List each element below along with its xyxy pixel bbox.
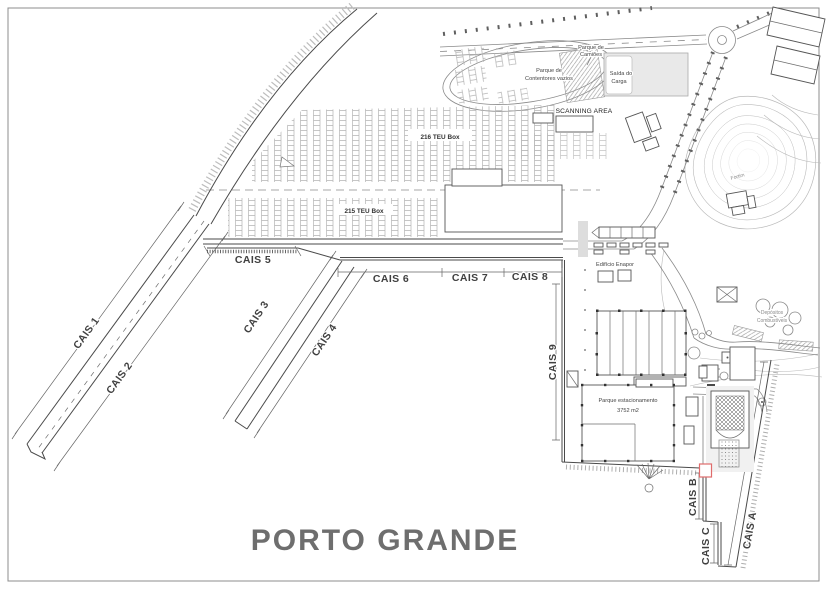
label-216-teu: 216 TEU Box <box>420 134 460 141</box>
label-cais-5: CAIS 5 <box>235 254 271 266</box>
label-cais-8: CAIS 8 <box>512 271 548 283</box>
label-cais-c: CAIS C <box>700 527 712 565</box>
enapor-building <box>599 227 655 238</box>
label-cais-7: CAIS 7 <box>452 272 488 284</box>
teu-215-field <box>228 198 443 237</box>
label-empty-containers-1: Parque de <box>536 68 562 74</box>
label-fuel-1: Depósitos <box>761 310 784 316</box>
label-parking-1: Parque estacionamento <box>598 398 657 404</box>
label-empty-containers-2: Contentores vazios <box>525 76 573 82</box>
label-cais-6: CAIS 6 <box>373 273 409 285</box>
fuel-pier <box>700 386 755 477</box>
warehouse-annex <box>452 169 502 186</box>
port-plan-canvas: Fortim <box>0 0 827 589</box>
highlight-square <box>700 464 712 477</box>
label-215-teu: 215 TEU Box <box>344 208 384 215</box>
label-truck-park-1: Parque de <box>578 45 604 51</box>
label-cais-b: CAIS B <box>687 478 699 516</box>
label-cargo-exit-2: Carga <box>611 79 627 85</box>
label-truck-park-2: Camiões <box>580 52 602 58</box>
label-fuel-2: Combustíveis <box>757 318 788 324</box>
warehouse <box>445 185 562 232</box>
label-parking-2: 3752 m2 <box>617 408 639 414</box>
page-title: PORTO GRANDE <box>251 524 519 557</box>
teu-216-field <box>252 105 556 182</box>
label-scanning-area: SCANNING AREA <box>556 108 613 115</box>
label-enapor: Edifício Enapor <box>596 262 634 268</box>
label-cargo-exit-1: Saída do <box>610 71 632 77</box>
scanner-building <box>556 116 593 132</box>
label-cais-9: CAIS 9 <box>547 344 559 380</box>
drawing-page: Fortim <box>0 0 827 589</box>
